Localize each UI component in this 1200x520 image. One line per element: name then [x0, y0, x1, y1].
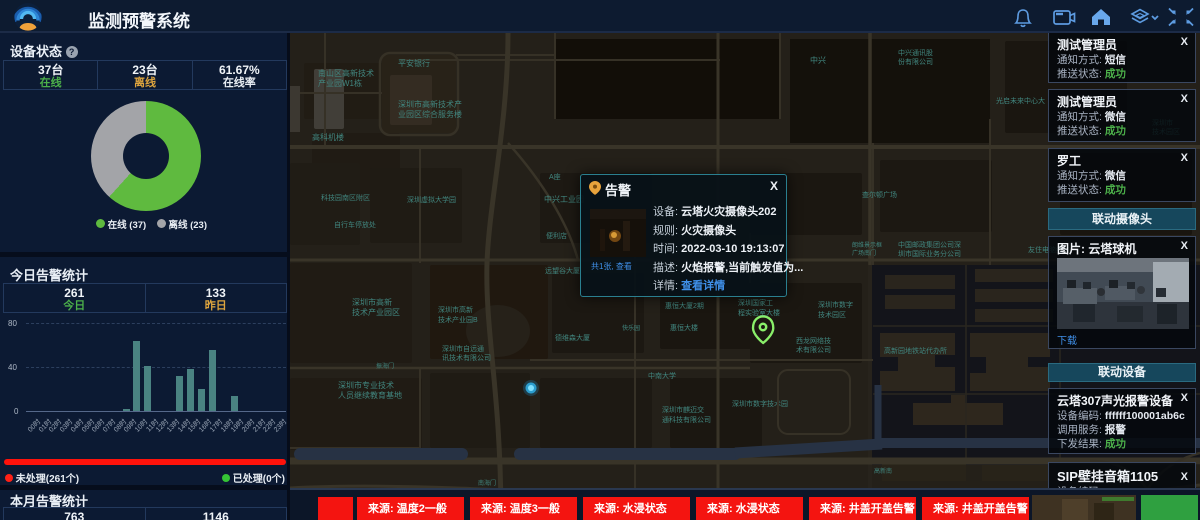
svg-text:深圳市数字: 深圳市数字 [818, 300, 853, 309]
svg-text:技术产业园B: 技术产业园B [438, 315, 478, 324]
svg-text:深圳市麒迈交: 深圳市麒迈交 [662, 405, 704, 414]
svg-text:振海门: 振海门 [376, 362, 394, 370]
svg-text:中南大学: 中南大学 [648, 371, 676, 380]
svg-text:快乐园: 快乐园 [622, 324, 640, 332]
svg-text:深圳国家工: 深圳国家工 [738, 298, 773, 307]
svg-text:程实验室大楼: 程实验室大楼 [738, 308, 780, 317]
svg-text:深圳市高新: 深圳市高新 [438, 305, 473, 314]
svg-text:平安银行: 平安银行 [398, 58, 430, 68]
svg-text:查尔顿广场: 查尔顿广场 [862, 190, 897, 199]
svg-text:术有限公司: 术有限公司 [796, 345, 831, 354]
svg-text:西龙网络技: 西龙网络技 [796, 336, 831, 345]
svg-text:技术园区: 技术园区 [818, 310, 846, 319]
svg-text:南山区高新技术: 南山区高新技术 [318, 68, 374, 78]
svg-text:通科技有限公司: 通科技有限公司 [662, 415, 711, 424]
svg-text:高科机楼: 高科机楼 [312, 132, 344, 142]
svg-text:产业园W1栋: 产业园W1栋 [318, 78, 362, 88]
svg-text:南海门: 南海门 [478, 479, 496, 487]
svg-text:深圳虚拟大学园: 深圳虚拟大学园 [407, 195, 456, 204]
svg-text:中兴工业园: 中兴工业园 [544, 194, 584, 204]
svg-text:德维森大厦: 德维森大厦 [555, 333, 590, 342]
svg-text:惠恒大楼: 惠恒大楼 [670, 323, 698, 332]
svg-text:中兴: 中兴 [810, 55, 826, 65]
svg-text:朗维景示框: 朗维景示框 [852, 241, 882, 249]
svg-text:深圳市高新技术产: 深圳市高新技术产 [398, 99, 462, 109]
svg-text:深圳市数字技术园: 深圳市数字技术园 [732, 399, 788, 408]
svg-text:广场南门: 广场南门 [852, 249, 876, 257]
svg-text:惠恒大厦2期: 惠恒大厦2期 [665, 301, 704, 310]
svg-text:A座: A座 [549, 172, 561, 181]
svg-text:份有限公司: 份有限公司 [898, 57, 933, 66]
svg-text:便利店: 便利店 [546, 231, 567, 240]
svg-text:深圳市专业技术: 深圳市专业技术 [338, 380, 394, 390]
svg-text:讯技术有限公司: 讯技术有限公司 [442, 353, 491, 362]
svg-text:业园区综合服务楼: 业园区综合服务楼 [398, 109, 462, 119]
svg-text:技术产业园区: 技术产业园区 [352, 307, 400, 317]
svg-text:深圳市高新: 深圳市高新 [352, 297, 392, 307]
svg-text:远望谷大厦: 远望谷大厦 [545, 266, 580, 275]
svg-text:光启未来中心大: 光启未来中心大 [996, 96, 1045, 105]
svg-text:深圳市自远通: 深圳市自远通 [442, 344, 484, 353]
svg-text:人员继续教育基地: 人员继续教育基地 [338, 390, 402, 400]
svg-text:高新南: 高新南 [874, 467, 892, 475]
svg-text:中兴通讯股: 中兴通讯股 [898, 48, 933, 57]
svg-text:高新园地铁站代办所: 高新园地铁站代办所 [884, 346, 947, 355]
svg-text:自行车停放处: 自行车停放处 [334, 220, 376, 229]
svg-text:中国邮政集团公司深: 中国邮政集团公司深 [898, 240, 961, 249]
svg-text:科技园南区附区: 科技园南区附区 [321, 193, 370, 202]
svg-text:圳市国际业务分公司: 圳市国际业务分公司 [898, 249, 961, 258]
